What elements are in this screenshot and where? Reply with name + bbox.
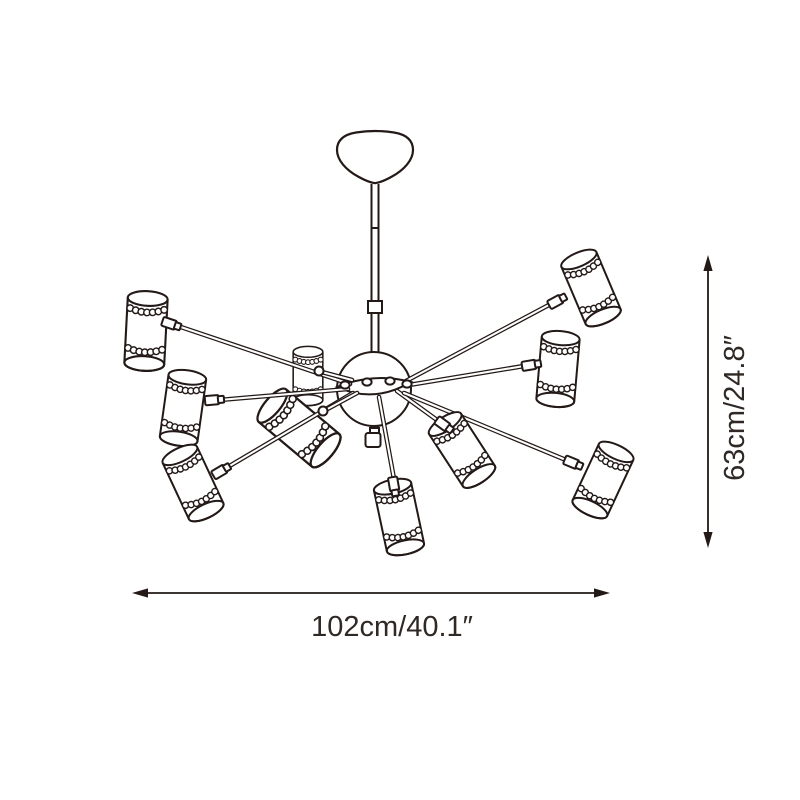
width-dimension-label: 102cm/40.1″ — [311, 611, 473, 643]
lamp-shade — [558, 245, 623, 330]
lamp-shade — [159, 368, 208, 449]
height-dimension-label: 63cm/24.8″ — [719, 335, 751, 481]
arrow-right-icon — [594, 588, 610, 597]
arrow-left-icon — [132, 588, 148, 597]
arrow-up-icon — [703, 255, 712, 271]
chandelier-dimension-diagram: 102cm/40.1″ 63cm/24.8″ — [0, 0, 800, 800]
lamp-shade — [569, 437, 636, 522]
diagram-canvas: 102cm/40.1″ 63cm/24.8″ — [0, 0, 800, 800]
arrow-down-icon — [703, 532, 712, 548]
lamp-shade — [535, 329, 580, 408]
rod-coupler — [368, 301, 382, 313]
width-dimension: 102cm/40.1″ — [132, 588, 610, 643]
hub-finial — [366, 425, 381, 447]
height-dimension: 63cm/24.8″ — [703, 255, 751, 548]
lamp-shade — [124, 290, 169, 372]
lamp-shade — [159, 440, 226, 525]
hanging-rod — [368, 184, 382, 353]
ceiling-canopy — [337, 131, 413, 183]
